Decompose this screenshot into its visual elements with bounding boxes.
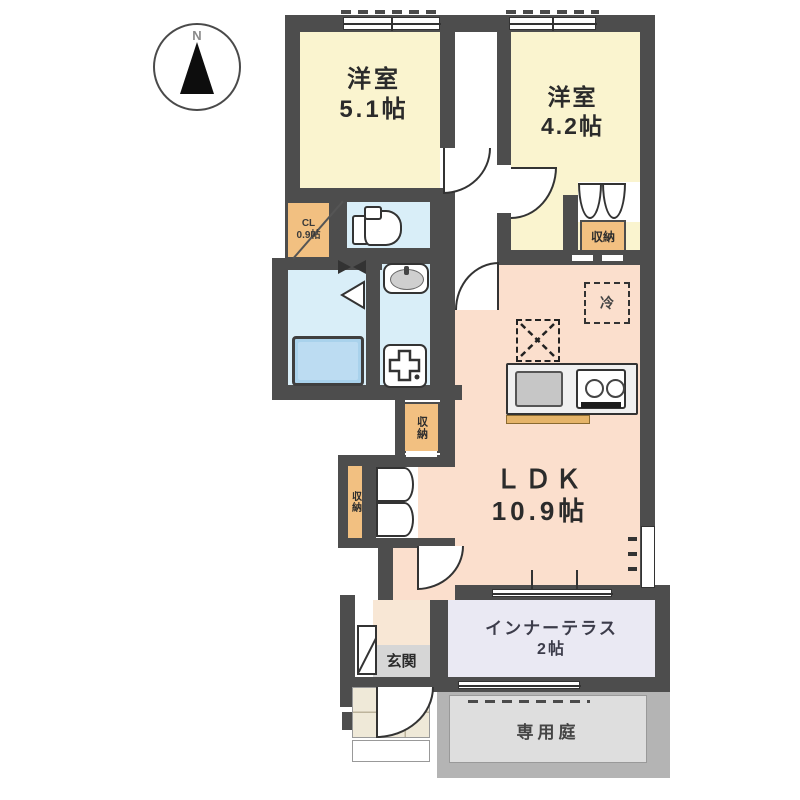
bifold-door-icon (376, 467, 414, 502)
bedroom2-label: 洋室 4.2帖 (505, 72, 640, 152)
floor-plan: N CL 0.9帖 収納 収納 収納 冷 (0, 0, 800, 800)
wall-segment (272, 385, 462, 400)
wall-segment (430, 600, 448, 680)
storage-ldk-label: 収納 (348, 491, 363, 513)
wall-segment (350, 677, 440, 687)
wall-segment (272, 262, 288, 400)
hall-ldk-door-arc (455, 262, 499, 310)
counter-edge (506, 415, 590, 424)
entrance-step (352, 740, 430, 762)
wall-segment (285, 15, 655, 32)
bedroom1-window (343, 17, 440, 30)
compass-north-label: N (155, 28, 239, 43)
wall-segment (366, 262, 380, 387)
kitchen-sink-icon (515, 371, 563, 407)
wall-vent (572, 255, 628, 261)
window-dash (628, 552, 637, 556)
ldk-side-window (641, 526, 655, 588)
storage-ldk: 収納 (346, 464, 364, 540)
wall-segment (440, 400, 455, 457)
north-arrow-icon (180, 42, 214, 94)
accordion-door-icon (338, 260, 366, 274)
ldk-label: ＬＤＫ 10.9帖 (440, 450, 640, 540)
grill-bar (581, 402, 621, 408)
refrigerator-space: 冷 (584, 282, 630, 324)
wall-segment (640, 15, 655, 600)
wall-segment (285, 15, 300, 202)
entrance-hall-floor (373, 600, 430, 647)
cupboard-cross-icon (518, 321, 557, 359)
bifold-door-icon (376, 502, 414, 537)
washing-machine-icon (383, 344, 427, 388)
stove-icon (576, 369, 626, 409)
storage-opening (406, 451, 437, 457)
bath-door-icon (340, 280, 366, 310)
compass: N (153, 23, 241, 111)
storage-hall-label: 収納 (414, 416, 430, 440)
garden-dashed-line (468, 700, 590, 703)
storage-hall: 収納 (403, 402, 440, 453)
wall-segment (655, 585, 670, 692)
toilet-icon (350, 206, 402, 248)
bathtub-icon (292, 336, 364, 386)
wall-segment (378, 548, 393, 600)
wall-segment (430, 202, 455, 400)
window-dash (628, 567, 637, 571)
refrigerator-label: 冷 (600, 293, 614, 313)
shutter-dashes (341, 10, 442, 14)
sliding-door-frame (531, 570, 533, 589)
storage-bedroom2: 収納 (580, 220, 626, 252)
garden-label: 専用庭 (449, 718, 647, 748)
sliding-door-frame (576, 570, 578, 589)
shutter-dashes (506, 10, 599, 14)
bedroom2-window (509, 17, 596, 30)
wall-segment (364, 464, 376, 540)
bedroom1-door-arc (443, 148, 491, 194)
entrance-label: 玄関 (373, 647, 430, 677)
bedroom1-label: 洋室 5.1帖 (300, 55, 448, 135)
closet-cl-label: CL 0.9帖 (285, 208, 332, 252)
storage-bedroom2-label: 収納 (591, 228, 615, 245)
terrace-garden-sliding-door (458, 681, 580, 689)
burner-icon (606, 379, 625, 398)
terrace-label: インナーテラス 2帖 (448, 608, 655, 670)
burner-icon (585, 379, 604, 398)
wall-segment (563, 195, 578, 253)
cupboard-space (516, 319, 560, 362)
ldk-terrace-sliding-door (492, 589, 612, 597)
ldk-floor (455, 310, 497, 585)
washbasin-icon (383, 263, 429, 294)
